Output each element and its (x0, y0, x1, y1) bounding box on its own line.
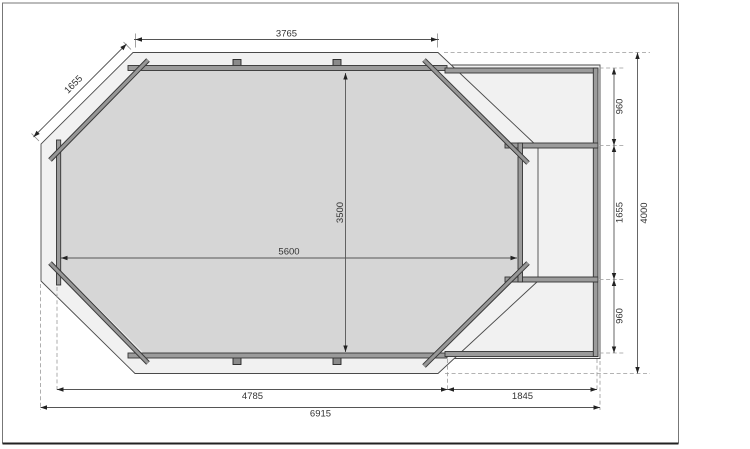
dim-top-width: 3765 (134, 29, 439, 48)
floor-plan-page: 3765 1655 3500 5600 4785 1845 (0, 0, 750, 449)
wall-top-annex (445, 68, 598, 73)
dim-label-pool-width: 3500 (335, 202, 346, 223)
dim-label-bottom-main: 4785 (242, 391, 263, 402)
dim-label-annex-middle: 1655 (615, 202, 626, 223)
dim-annex-chain: 960 1655 960 (612, 68, 626, 353)
dim-overall-width: 6915 (41, 405, 601, 419)
wall-bottom-annex (445, 352, 598, 357)
dim-label-top-width: 3765 (276, 29, 297, 40)
wall-right-annex (593, 68, 598, 357)
dim-label-overall-width: 6915 (310, 409, 331, 420)
dim-bottom-annex: 1845 (448, 387, 598, 402)
dim-label-annex-bottom: 960 (615, 308, 626, 324)
dim-overall-height: 4000 (635, 53, 650, 374)
dim-label-annex-top: 960 (615, 99, 626, 115)
wall-top-main (128, 66, 447, 71)
dim-label-diagonal-side: 1655 (62, 73, 85, 96)
floor-plan-drawing: 3765 1655 3500 5600 4785 1845 (0, 0, 750, 449)
dim-label-pool-length: 5600 (278, 247, 299, 258)
wall-left (57, 140, 61, 285)
dim-label-bottom-annex: 1845 (512, 391, 533, 402)
pool-basin (61, 71, 518, 354)
dim-bottom-main: 4785 (57, 387, 448, 402)
room-wall-left (518, 143, 523, 282)
wall-bottom-main (128, 353, 447, 358)
dim-label-overall-height: 4000 (639, 202, 650, 223)
